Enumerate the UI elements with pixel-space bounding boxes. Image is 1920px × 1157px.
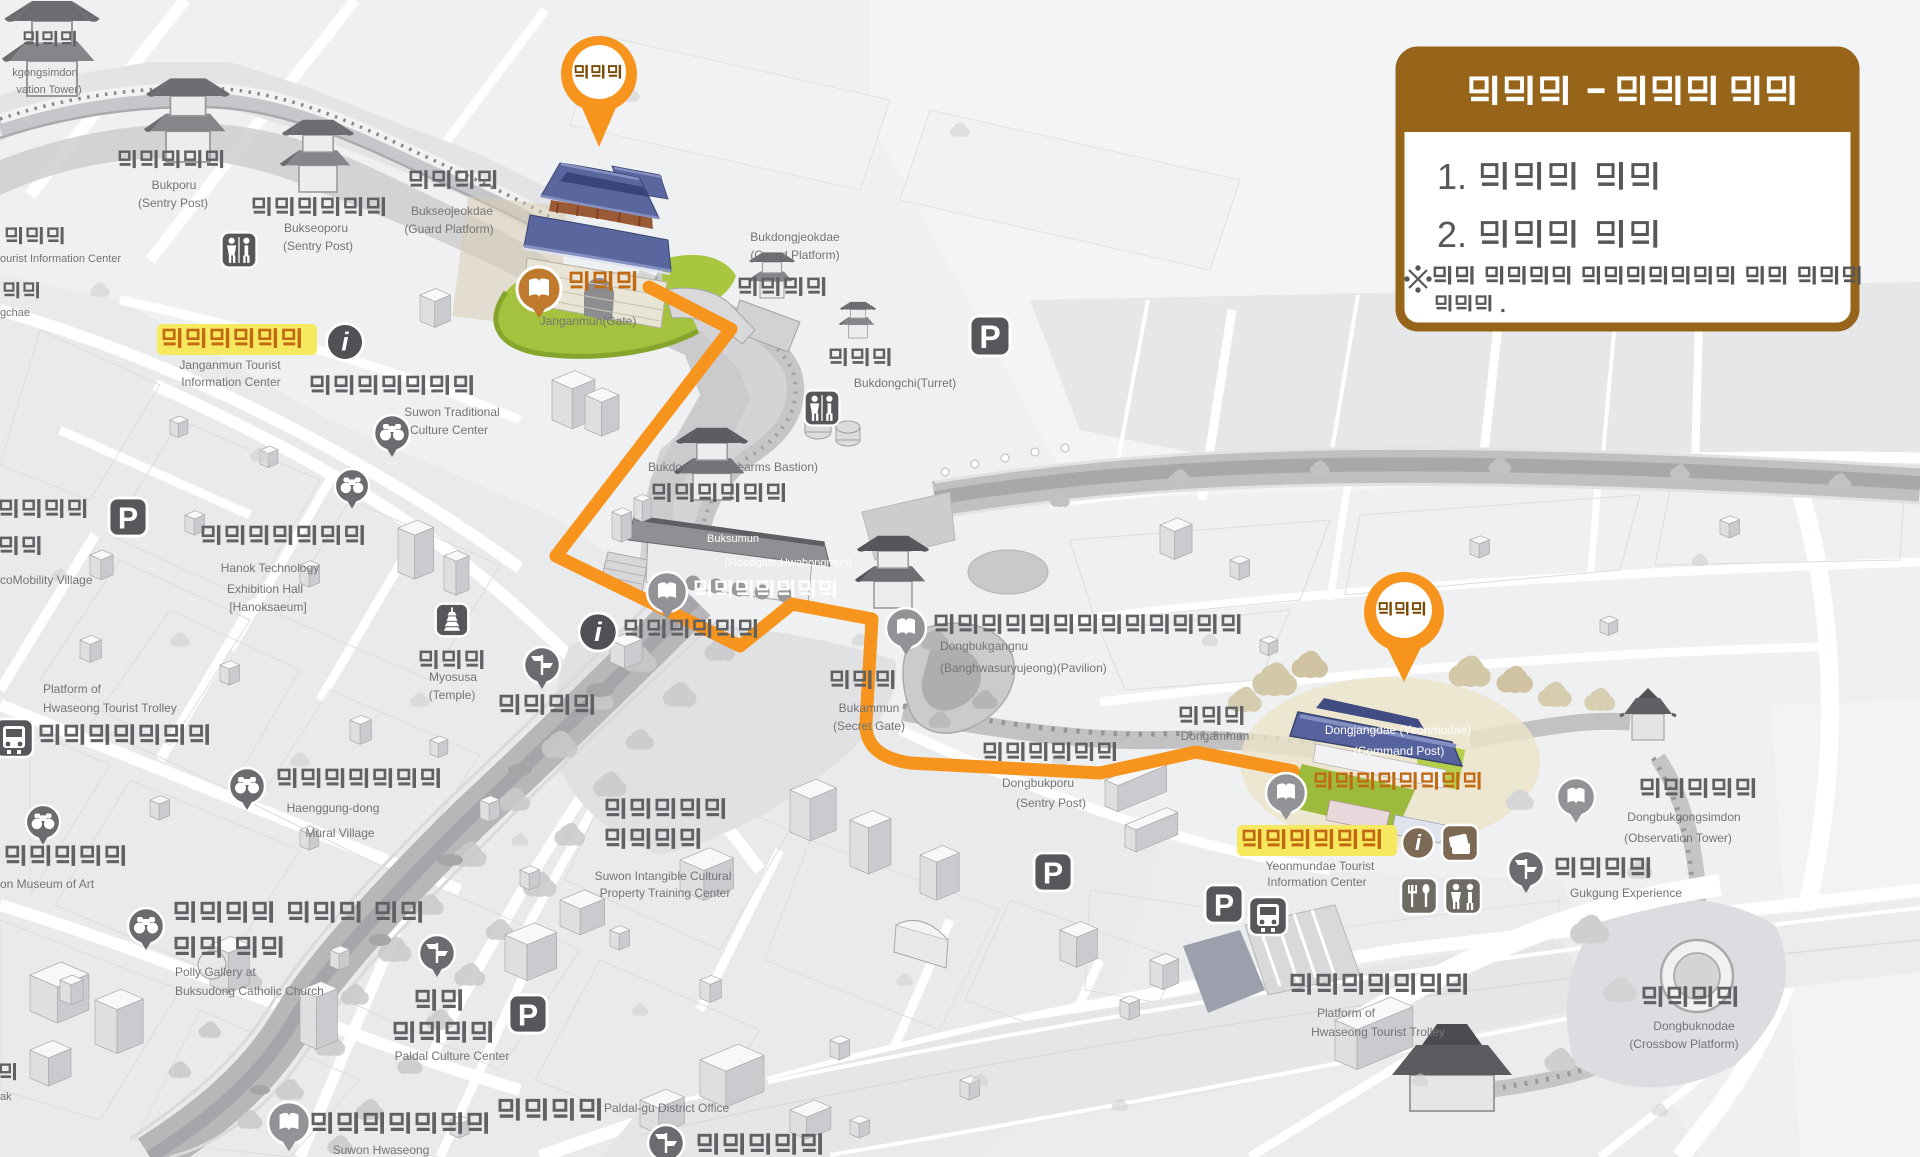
svg-text:(Observation Tower): (Observation Tower)	[1624, 831, 1732, 845]
svg-text:ourist Information Center: ourist Information Center	[0, 253, 121, 265]
svg-text:kgongsimdon: kgongsimdon	[12, 67, 77, 79]
svg-text:Culture Center: Culture Center	[410, 423, 488, 437]
svg-text:(Guard Platform): (Guard Platform)	[404, 222, 493, 236]
svg-text:Bukdongjeokdae: Bukdongjeokdae	[750, 230, 840, 244]
svg-text:Bukdongporu(Firearms Bastion): Bukdongporu(Firearms Bastion)	[648, 460, 818, 474]
svg-text:vation Tower): vation Tower)	[16, 84, 81, 96]
svg-text:Myosusa: Myosusa	[429, 670, 477, 684]
svg-text:Buksumun: Buksumun	[707, 533, 759, 545]
svg-text:Hanok Technology: Hanok Technology	[221, 561, 320, 575]
svg-text:(Crossbow Platform): (Crossbow Platform)	[1629, 1037, 1738, 1051]
svg-text:Information Center: Information Center	[181, 375, 280, 389]
svg-text:Suwon Hwaseong: Suwon Hwaseong	[333, 1143, 430, 1157]
svg-text:2.: 2.	[1437, 214, 1467, 255]
svg-text:Paldal Culture Center: Paldal Culture Center	[395, 1049, 510, 1063]
svg-text:Janganmun(Gate): Janganmun(Gate)	[540, 314, 637, 328]
svg-text:Gukgung Experience: Gukgung Experience	[1570, 886, 1682, 900]
svg-text:Dongbukporu: Dongbukporu	[1002, 776, 1074, 790]
svg-text:(Sentry Post): (Sentry Post)	[138, 196, 208, 210]
svg-text:(Secret Gate): (Secret Gate)	[833, 719, 905, 733]
svg-text:Yeonmundae Tourist: Yeonmundae Tourist	[1266, 859, 1375, 873]
svg-text:Bukdongchi(Turret): Bukdongchi(Turret)	[854, 376, 956, 390]
svg-text:Mural Village: Mural Village	[305, 826, 374, 840]
svg-text:Dongbuknodae: Dongbuknodae	[1653, 1019, 1735, 1033]
svg-text:(Temple): (Temple)	[429, 688, 476, 702]
svg-text:Property Training Center: Property Training Center	[600, 886, 731, 900]
svg-text:Bukporu: Bukporu	[152, 178, 197, 192]
svg-text:ak: ak	[0, 1091, 12, 1103]
svg-text:Dongbukgangnu: Dongbukgangnu	[940, 639, 1028, 653]
svg-text:coMobility Village: coMobility Village	[0, 573, 93, 587]
svg-text:(Sentry Post): (Sentry Post)	[283, 239, 353, 253]
svg-text:on Museum of Art: on Museum of Art	[0, 877, 95, 891]
svg-text:(Command Post): (Command Post)	[1354, 744, 1445, 758]
svg-text:Buksudong Catholic Church: Buksudong Catholic Church	[175, 984, 324, 998]
svg-text:(Sentry Post): (Sentry Post)	[1016, 796, 1086, 810]
svg-text:Suwon Intangible Cultural: Suwon Intangible Cultural	[595, 869, 732, 883]
svg-text:(Floodgate;Hwahongmun): (Floodgate;Hwahongmun)	[724, 557, 851, 569]
svg-text:(Guard Platform): (Guard Platform)	[750, 248, 839, 262]
svg-text:Dongbukgongsimdon: Dongbukgongsimdon	[1627, 810, 1740, 824]
svg-text:Dongammun: Dongammun	[1181, 729, 1250, 743]
svg-text:Exhibition Hall: Exhibition Hall	[227, 582, 303, 596]
svg-text:Dongjangdae (Yeonmudae): Dongjangdae (Yeonmudae)	[1325, 723, 1471, 737]
svg-text:Janganmun Tourist: Janganmun Tourist	[179, 358, 281, 372]
svg-text:[Hanoksaeum]: [Hanoksaeum]	[229, 600, 306, 614]
svg-text:Platform of: Platform of	[43, 682, 102, 696]
svg-text:(Banghwasuryujeong)(Pavilion): (Banghwasuryujeong)(Pavilion)	[940, 661, 1107, 675]
svg-text:Bukseoporu: Bukseoporu	[284, 221, 348, 235]
svg-text:Hwaseong Tourist Trolley: Hwaseong Tourist Trolley	[1311, 1025, 1445, 1039]
svg-text:Bukammun: Bukammun	[839, 701, 900, 715]
svg-text:Haenggung-dong: Haenggung-dong	[287, 801, 380, 815]
svg-text:Bukseojeokdae: Bukseojeokdae	[411, 204, 493, 218]
svg-text:Suwon Traditional: Suwon Traditional	[404, 405, 499, 419]
svg-text:Paldal-gu District Office: Paldal-gu District Office	[604, 1101, 729, 1115]
svg-text:gchae: gchae	[0, 307, 30, 319]
svg-text:Platform of: Platform of	[1317, 1006, 1376, 1020]
svg-text:Hwaseong Tourist Trolley: Hwaseong Tourist Trolley	[43, 701, 177, 715]
svg-text:1.: 1.	[1437, 156, 1467, 197]
svg-text:Polly Gallery at: Polly Gallery at	[175, 965, 256, 979]
svg-text:Information Center: Information Center	[1267, 875, 1366, 889]
